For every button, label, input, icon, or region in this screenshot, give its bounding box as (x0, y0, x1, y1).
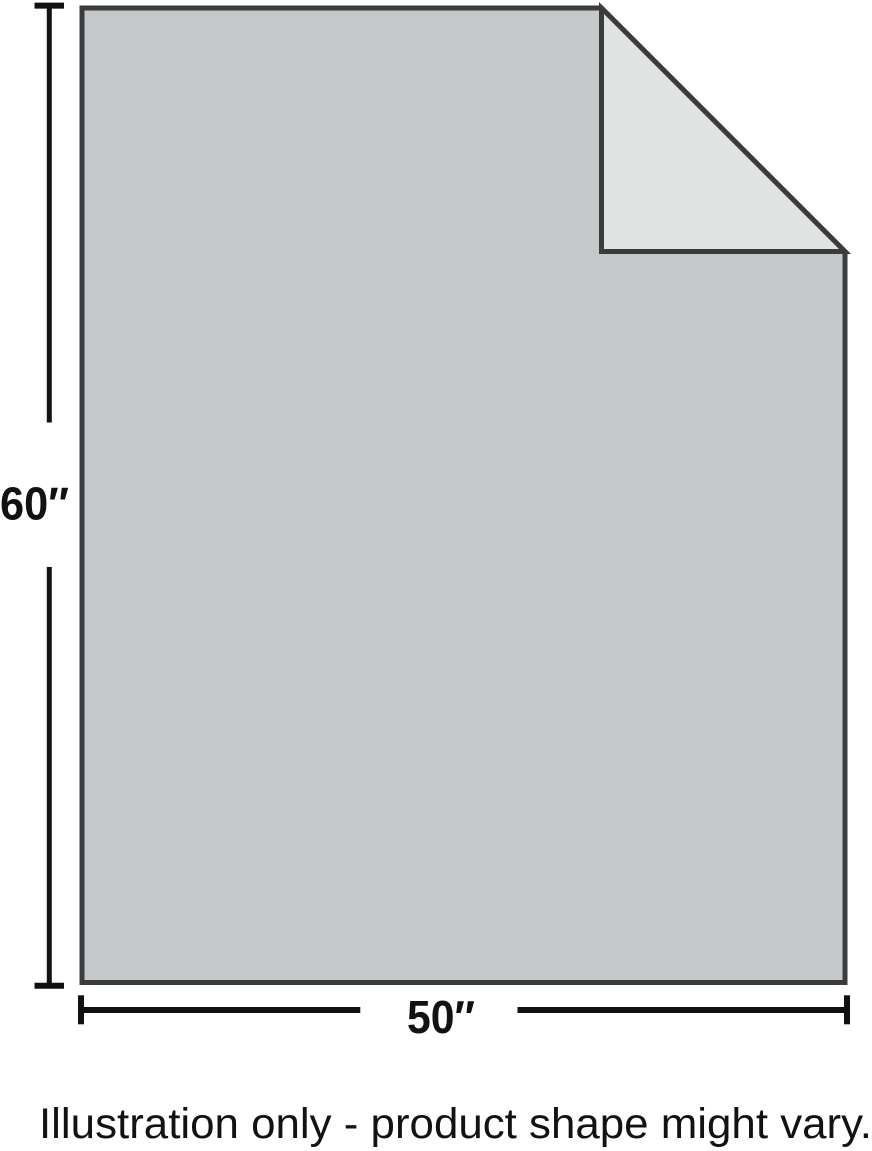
svg-text:Illustration only - product sh: Illustration only - product shape might … (39, 1101, 872, 1148)
svg-text:60″: 60″ (0, 478, 69, 530)
svg-text:50″: 50″ (407, 991, 475, 1043)
